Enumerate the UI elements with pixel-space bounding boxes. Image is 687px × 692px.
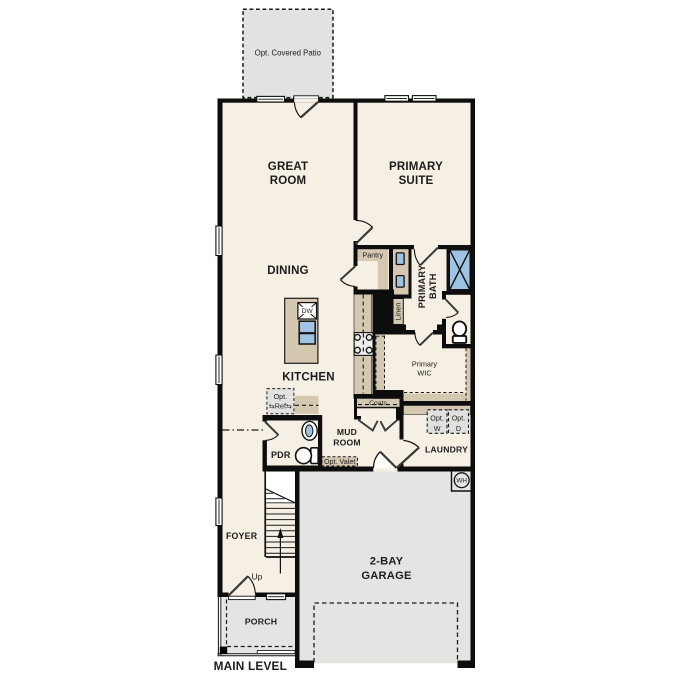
svg-text:Opt.: Opt.: [274, 392, 288, 401]
svg-text:MUD: MUD: [337, 427, 357, 437]
svg-text:GARAGE: GARAGE: [361, 570, 412, 582]
svg-text:WH: WH: [456, 478, 467, 485]
svg-text:D: D: [456, 424, 461, 433]
svg-text:WIC: WIC: [417, 369, 431, 378]
svg-text:ROOM: ROOM: [270, 175, 307, 187]
svg-text:Primary: Primary: [412, 360, 437, 369]
svg-text:FOYER: FOYER: [226, 531, 258, 541]
svg-text:W: W: [434, 424, 441, 433]
svg-text:Coats: Coats: [369, 400, 387, 407]
svg-text:PDR: PDR: [271, 450, 291, 460]
svg-text:Pantry: Pantry: [363, 252, 384, 260]
svg-text:MAIN LEVEL: MAIN LEVEL: [214, 659, 287, 673]
svg-text:BATH: BATH: [428, 273, 438, 299]
svg-text:⇆Ref⇆: ⇆Ref⇆: [269, 402, 292, 411]
svg-text:SUITE: SUITE: [399, 175, 434, 187]
svg-text:PRIMARY: PRIMARY: [417, 265, 427, 308]
svg-text:2-BAY: 2-BAY: [370, 556, 404, 568]
svg-text:PORCH: PORCH: [245, 617, 277, 627]
svg-text:PRIMARY: PRIMARY: [389, 161, 443, 173]
svg-text:KITCHEN: KITCHEN: [282, 372, 335, 384]
svg-text:Up: Up: [252, 572, 263, 582]
svg-text:DINING: DINING: [267, 265, 308, 277]
svg-text:Opt. Valet: Opt. Valet: [324, 457, 355, 466]
svg-text:Opt.: Opt.: [452, 414, 466, 423]
svg-text:ROOM: ROOM: [333, 438, 361, 448]
svg-text:LAUNDRY: LAUNDRY: [425, 444, 468, 454]
svg-text:Linen: Linen: [394, 302, 403, 320]
svg-text:DW: DW: [302, 308, 314, 315]
svg-text:Opt.: Opt.: [430, 414, 444, 423]
svg-text:Opt. Covered Patio: Opt. Covered Patio: [255, 49, 322, 58]
svg-text:GREAT: GREAT: [268, 161, 308, 173]
